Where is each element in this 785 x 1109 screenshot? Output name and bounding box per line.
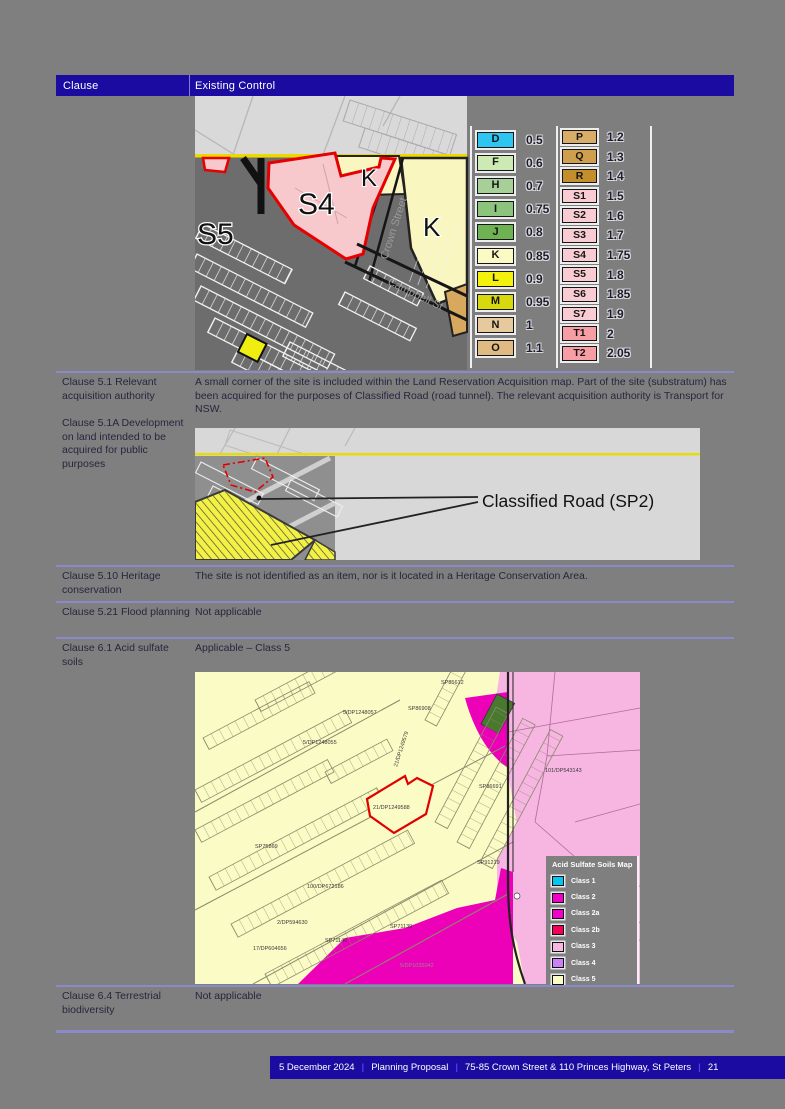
ass-legend-swatch (552, 893, 564, 903)
lot-label: 101/DP543143 (545, 768, 582, 774)
ass-legend-swatch (552, 925, 564, 935)
fsr-legend-value: 1.85 (607, 287, 630, 301)
fsr-legend-value: 1.75 (607, 248, 630, 262)
fsr-legend-swatch: D (477, 132, 514, 148)
fsr-legend-entry: H 0.7 (477, 174, 549, 197)
row-divider (56, 637, 734, 639)
zone-label-s5: S5 (197, 218, 234, 251)
existing-control-column-header: Existing Control (190, 80, 275, 92)
ass-legend-entry: Class 4 (552, 955, 637, 971)
fsr-legend-entry: P 1.2 (562, 127, 630, 147)
ass-legend-swatch (552, 975, 564, 985)
row-divider (56, 601, 734, 603)
fsr-legend-entry: S3 1.7 (562, 225, 630, 245)
fsr-legend-entry: S2 1.6 (562, 206, 630, 226)
fsr-legend-value: 2 (607, 327, 614, 341)
ass-legend-swatch (552, 909, 564, 919)
ass-legend-entry: Class 1 (552, 873, 637, 889)
lot-label: 100/DP672186 (307, 884, 344, 890)
fsr-legend-entry: I 0.75 (477, 198, 549, 221)
fsr-legend-value: 0.6 (526, 156, 543, 170)
fsr-legend-swatch: S7 (562, 307, 597, 322)
fsr-legend-entry: T1 2 (562, 324, 630, 344)
ass-legend: Acid Sulfate Soils Map Class 1 Class 2 C… (546, 856, 639, 984)
fsr-legend-value: 0.5 (526, 133, 543, 147)
footer-date: 5 December 2024 (279, 1062, 355, 1073)
footer-page-number: 21 (708, 1062, 719, 1073)
fsr-legend-value: 0.9 (526, 272, 543, 286)
lot-label: SP86908 (408, 706, 431, 712)
clause-cell-acid-sulfate: Clause 6.1 Acid sulfate soils (62, 642, 190, 669)
fsr-legend-value: 1.9 (607, 307, 624, 321)
zone-label-k-small: K (361, 165, 377, 192)
footer-separator: | (362, 1062, 365, 1073)
fsr-legend-column-2: P 1.2 Q 1.3 R 1.4 S1 1.5 S2 1.6 (562, 127, 630, 363)
fsr-legend-entry: J 0.8 (477, 221, 549, 244)
fsr-legend-swatch: T2 (562, 346, 597, 361)
fsr-legend-entry: Q 1.3 (562, 147, 630, 167)
fsr-legend-swatch: Q (562, 149, 597, 164)
zone-label-k-big: K (423, 212, 441, 242)
fsr-legend-entry: S4 1.75 (562, 245, 630, 265)
fsr-legend-divider-right (650, 126, 652, 368)
table-bottom-border (56, 1030, 734, 1033)
control-cell-heritage: The site is not identified as an item, n… (195, 570, 735, 584)
fsr-legend-entry: N 1 (477, 314, 549, 337)
classified-road-callout: Classified Road (SP2) (482, 491, 654, 511)
fsr-legend-value: 1.7 (607, 228, 624, 242)
control-cell-acquisition: A small corner of the site is included w… (195, 376, 735, 417)
lot-label: SP75869 (255, 844, 278, 850)
fsr-legend-swatch: S3 (562, 228, 597, 243)
ass-legend-entry: Class 2a (552, 906, 637, 922)
lot-label: 2/DP594630 (277, 920, 308, 926)
fsr-legend-value: 0.85 (526, 249, 549, 263)
lot-label: SP71139 (390, 924, 412, 930)
footer-separator: | (698, 1062, 701, 1073)
fsr-legend-value: 1.3 (607, 150, 624, 164)
fsr-legend-entry: M 0.95 (477, 290, 549, 313)
clause-cell-acquisition: Clause 5.1 Relevant acquisition authorit… (62, 376, 190, 471)
ass-legend-label: Class 1 (571, 878, 596, 885)
zone-label-s4: S4 (298, 188, 335, 221)
fsr-legend-value: 0.75 (526, 202, 549, 216)
fsr-legend-swatch: M (477, 294, 514, 310)
ass-legend-entry: Class 2b (552, 922, 637, 938)
control-cell-acid-sulfate: Applicable – Class 5 (195, 642, 735, 656)
lra-map-figure: Classified Road (SP2) (195, 428, 700, 560)
control-cell-biodiversity: Not applicable (195, 990, 735, 1004)
fsr-legend-entry: D 0.5 (477, 128, 549, 151)
fsr-legend-value: 0.7 (526, 179, 543, 193)
fsr-legend-swatch: T1 (562, 326, 597, 341)
ass-legend-label: Class 2 (571, 894, 596, 901)
clause-cell-biodiversity: Clause 6.4 Terrestrial biodiversity (62, 990, 190, 1017)
fsr-legend-entry: S5 1.8 (562, 265, 630, 285)
fsr-legend-divider-mid (556, 126, 558, 368)
clause-label: Clause 5.1 Relevant acquisition authorit… (62, 376, 190, 403)
fsr-legend-entry: S6 1.85 (562, 285, 630, 305)
fsr-legend-entry: K 0.85 (477, 244, 549, 267)
lot-label: 5/DP1248057 (343, 710, 377, 716)
fsr-legend-entry: S1 1.5 (562, 186, 630, 206)
footer-address: 75-85 Crown Street & 110 Princes Highway… (465, 1062, 691, 1073)
row-divider (56, 985, 734, 987)
ass-legend-label: Class 2b (571, 927, 600, 934)
lot-label: 5/DP1248055 (303, 740, 337, 746)
ass-legend-label: Class 2a (571, 910, 599, 917)
lot-label: 5/DP1035042 (400, 963, 434, 969)
clause-column-header: Clause (56, 75, 190, 96)
row-divider (56, 371, 734, 373)
ass-legend-swatch (552, 942, 564, 952)
fsr-legend-column-1: D 0.5 F 0.6 H 0.7 I 0.75 J 0.8 (477, 128, 549, 360)
fsr-legend-entry: O 1.1 (477, 337, 549, 360)
ass-legend-title: Acid Sulfate Soils Map (552, 860, 637, 869)
ass-legend-entry: Class 3 (552, 939, 637, 955)
lot-label: SP91219 (477, 860, 500, 866)
document-page: Clause Existing Control (0, 0, 785, 1109)
fsr-legend-swatch: P (562, 130, 597, 145)
ass-legend-label: Class 5 (571, 976, 596, 983)
page-footer: 5 December 2024 | Planning Proposal | 75… (270, 1056, 785, 1079)
fsr-legend-swatch: J (477, 224, 514, 240)
fsr-legend-swatch: K (477, 248, 514, 264)
fsr-legend-value: 1.1 (526, 341, 543, 355)
fsr-legend-swatch: F (477, 155, 514, 171)
clause-cell-heritage: Clause 5.10 Heritage conservation (62, 570, 190, 597)
fsr-legend-value: 1 (526, 318, 533, 332)
ass-legend-label: Class 4 (571, 960, 596, 967)
fsr-legend-value: 1.2 (607, 130, 624, 144)
ass-legend-label: Class 3 (571, 943, 596, 950)
row-divider (56, 565, 734, 567)
fsr-legend-swatch: R (562, 169, 597, 184)
fsr-legend-value: 0.95 (526, 295, 549, 309)
footer-doc-type: Planning Proposal (371, 1062, 448, 1073)
fsr-legend-divider-left (470, 126, 472, 368)
fsr-legend-swatch: I (477, 201, 514, 217)
fsr-legend-value: 1.5 (607, 189, 624, 203)
fsr-legend-value: 2.05 (607, 346, 630, 360)
fsr-legend-swatch: S6 (562, 287, 597, 302)
table-header: Clause Existing Control (56, 75, 734, 96)
fsr-legend-swatch: O (477, 340, 514, 356)
control-cell-flood: Not applicable (195, 606, 735, 620)
fsr-legend-entry: T2 2.05 (562, 344, 630, 364)
clause-label: Clause 5.1A Development on land intended… (62, 417, 190, 471)
fsr-legend-entry: S7 1.9 (562, 304, 630, 324)
fsr-legend-swatch: N (477, 317, 514, 333)
lot-label: 17/DP604656 (253, 946, 287, 952)
lot-label: SP85612 (441, 680, 464, 686)
ass-legend-swatch (552, 876, 564, 886)
footer-separator: | (455, 1062, 458, 1073)
lot-label: SP71140 (325, 938, 347, 944)
fsr-legend-swatch: L (477, 271, 514, 287)
fsr-legend-swatch: H (477, 178, 514, 194)
lot-label: SP86691 (479, 784, 502, 790)
fsr-legend-entry: F 0.6 (477, 151, 549, 174)
ass-legend-entries: Class 1 Class 2 Class 2a Class 2b (552, 873, 637, 988)
fsr-legend-value: 1.4 (607, 169, 624, 183)
fsr-legend-swatch: S5 (562, 267, 597, 282)
site-lot-label: 21/DP1249588 (373, 805, 410, 811)
fsr-legend-value: 1.8 (607, 268, 624, 282)
fsr-legend-swatch: S4 (562, 248, 597, 263)
fsr-legend-swatch: S1 (562, 189, 597, 204)
ass-legend-swatch (552, 958, 564, 968)
fsr-legend-value: 1.6 (607, 209, 624, 223)
fsr-legend-swatch: S2 (562, 208, 597, 223)
clause-cell-flood: Clause 5.21 Flood planning (62, 606, 190, 620)
ass-legend-entry: Class 2 (552, 889, 637, 905)
fsr-legend-entry: L 0.9 (477, 267, 549, 290)
fsr-legend-value: 0.8 (526, 225, 543, 239)
fsr-legend-entry: R 1.4 (562, 166, 630, 186)
